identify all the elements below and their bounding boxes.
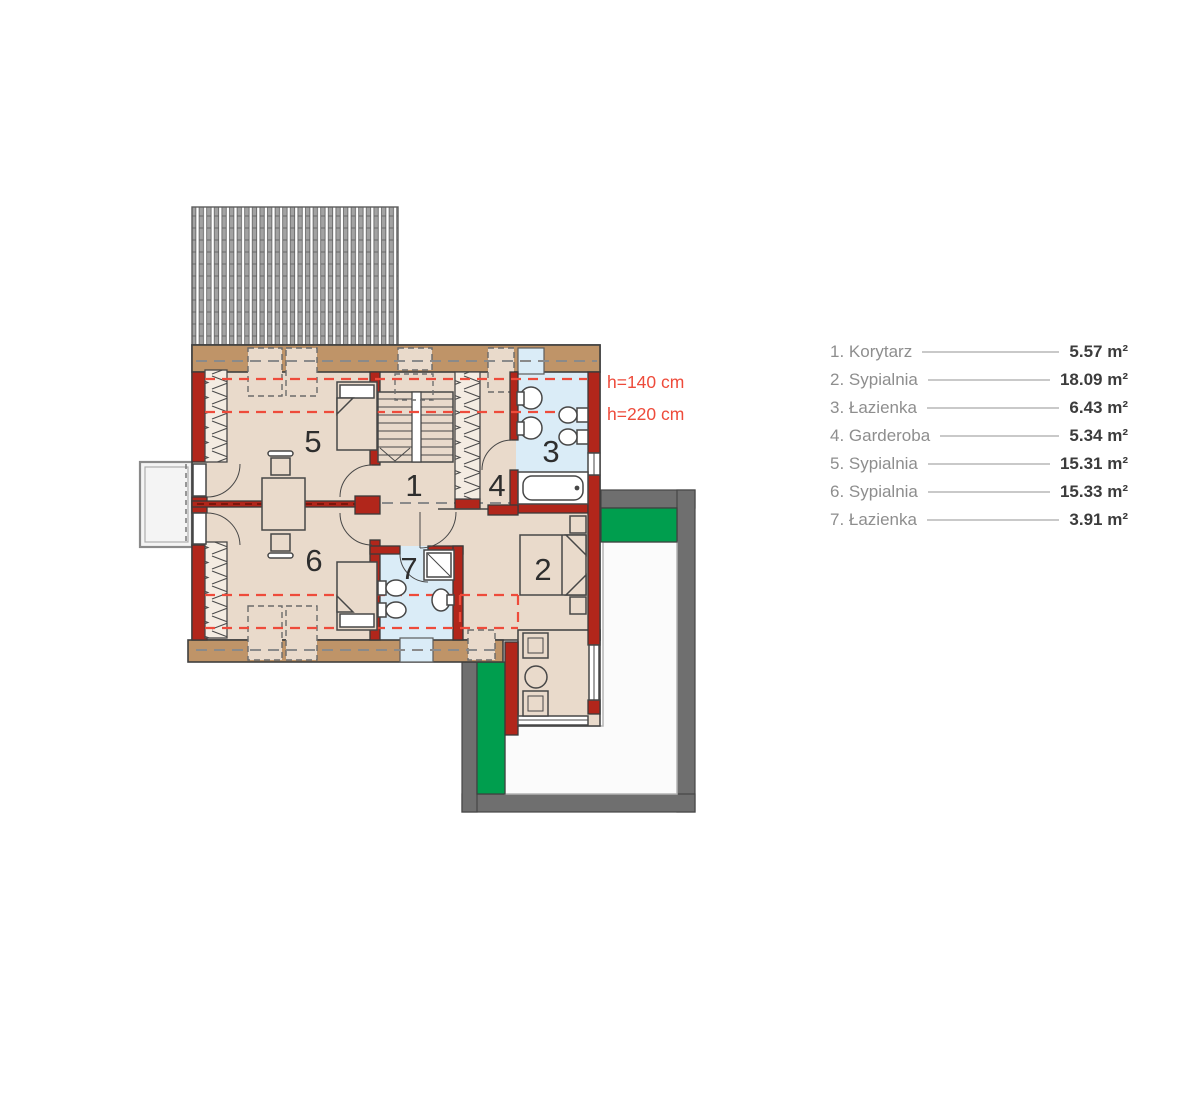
grass-strip-left: [477, 662, 505, 794]
bidet-symbol: [378, 603, 386, 617]
height-annotation-140: h=140 cm: [607, 372, 684, 392]
legend-room-label: 5. Sypialnia: [830, 454, 918, 474]
nightstand-symbol: [570, 516, 586, 533]
legend-row: 6. Sypialnia 15.33 m²: [830, 478, 1128, 506]
toilet-symbol: [577, 408, 588, 422]
pillow-symbol: [340, 385, 374, 398]
legend-row: 4. Garderoba 5.34 m²: [830, 422, 1128, 450]
room-label-2: 2: [534, 552, 551, 587]
legend-room-area: 5.57 m²: [1069, 342, 1128, 362]
roof-hatch: [192, 207, 398, 345]
legend-room-label: 2. Sypialnia: [830, 370, 918, 390]
armchair-symbol: [523, 691, 548, 716]
legend-row: 5. Sypialnia 15.31 m²: [830, 450, 1128, 478]
room-legend: 1. Korytarz 5.57 m² 2. Sypialnia 18.09 m…: [830, 338, 1128, 534]
legend-row: 7. Łazienka 3.91 m²: [830, 506, 1128, 534]
room-label-6: 6: [305, 543, 322, 578]
legend-row: 3. Łazienka 6.43 m²: [830, 394, 1128, 422]
legend-room-label: 6. Sypialnia: [830, 482, 918, 502]
legend-room-area: 18.09 m²: [1060, 370, 1128, 390]
desk-symbol: [262, 478, 305, 530]
toilet-symbol: [378, 581, 386, 595]
legend-room-label: 7. Łazienka: [830, 510, 917, 530]
legend-room-area: 5.34 m²: [1069, 426, 1128, 446]
legend-room-label: 4. Garderoba: [830, 426, 930, 446]
legend-room-area: 6.43 m²: [1069, 398, 1128, 418]
coffee-table-symbol: [525, 666, 547, 688]
legend-leader-line: [928, 379, 1050, 381]
legend-leader-line: [922, 351, 1059, 353]
nightstand-symbol: [570, 597, 586, 614]
legend-leader-line: [940, 435, 1059, 437]
legend-leader-line: [927, 519, 1059, 521]
balcony: [140, 462, 192, 547]
legend-leader-line: [928, 491, 1050, 493]
legend-room-label: 3. Łazienka: [830, 398, 917, 418]
legend-room-label: 1. Korytarz: [830, 342, 912, 362]
room-label-1: 1: [405, 468, 422, 503]
room-label-3: 3: [542, 434, 559, 469]
bidet-symbol: [577, 430, 588, 444]
legend-leader-line: [928, 463, 1050, 465]
armchair-symbol: [523, 633, 548, 658]
legend-room-area: 15.33 m²: [1060, 482, 1128, 502]
legend-row: 1. Korytarz 5.57 m²: [830, 338, 1128, 366]
legend-room-area: 15.31 m²: [1060, 454, 1128, 474]
chair-symbol: [271, 458, 290, 475]
balcony-door-room6: [193, 513, 206, 544]
room-label-7: 7: [400, 551, 417, 586]
legend-room-area: 3.91 m²: [1069, 510, 1128, 530]
chair-symbol: [271, 534, 290, 551]
grass-strip-top: [601, 508, 677, 542]
floor-plan: 1 2 3 4 5 6 7 h=140 cm h=220 cm: [0, 0, 1200, 1100]
balcony-door-room5: [193, 464, 206, 496]
room-label-4: 4: [488, 468, 505, 503]
legend-leader-line: [927, 407, 1059, 409]
room-label-5: 5: [304, 424, 321, 459]
height-annotation-220: h=220 cm: [607, 404, 684, 424]
pillow-symbol: [340, 614, 374, 627]
legend-row: 2. Sypialnia 18.09 m²: [830, 366, 1128, 394]
